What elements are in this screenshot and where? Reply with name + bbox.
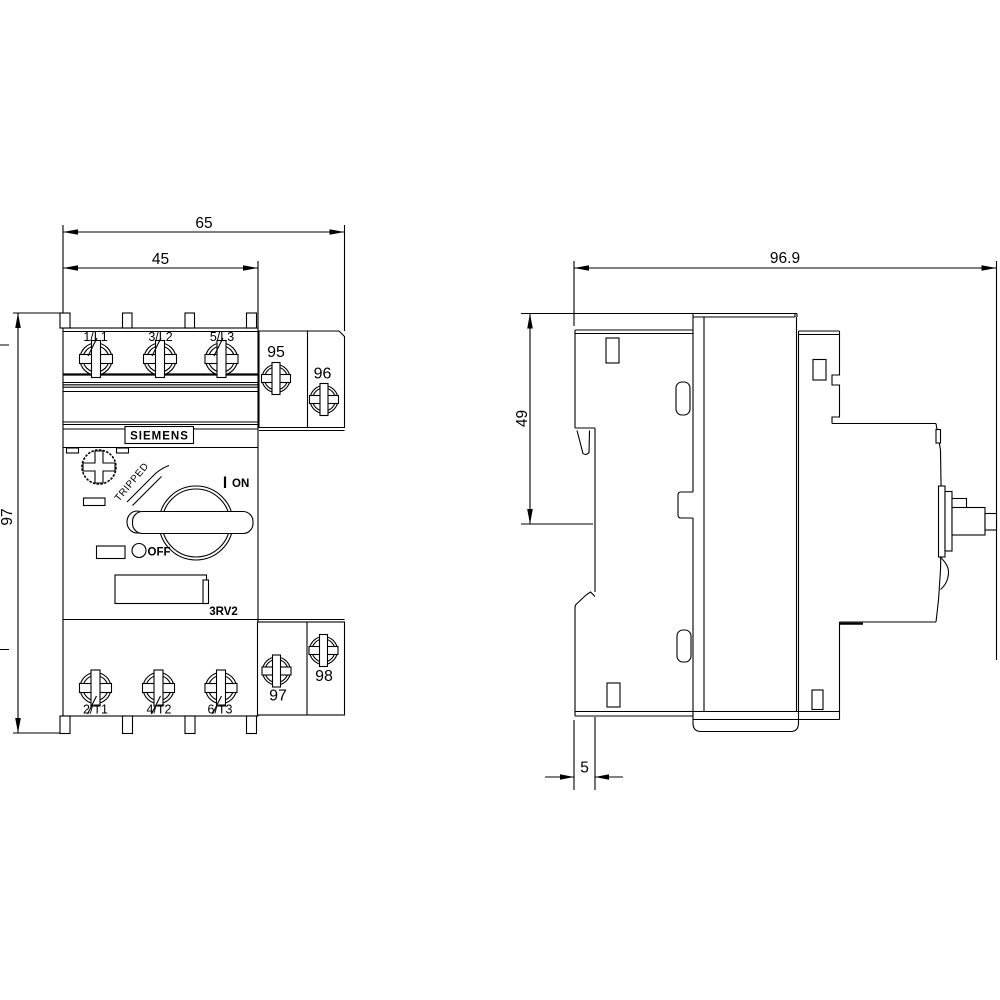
dim-din-clip: 5 [545, 717, 623, 790]
dim-height-upper-label: 49 [514, 410, 531, 427]
model-label: 3RV2 [209, 606, 238, 618]
aux-label-98: 98 [315, 668, 333, 685]
side-front-column [799, 331, 942, 720]
dim-width-total-label: 65 [195, 215, 212, 232]
mounting-tab [123, 313, 133, 328]
mounting-tab [185, 313, 195, 328]
mounting-tab [247, 716, 257, 734]
mounting-tab [123, 716, 133, 734]
mounting-tab [185, 716, 195, 734]
mounting-tab [60, 716, 70, 734]
terminal-label-1L1: 1/L1 [83, 330, 107, 344]
side-center-column [678, 314, 799, 732]
dim-depth-total-label: 96.9 [770, 250, 800, 267]
dim-height-upper: 49 [514, 314, 693, 525]
aux-label-95: 95 [267, 344, 285, 361]
dim-depth-total: 96.9 [574, 250, 997, 660]
label-window [115, 575, 207, 604]
aux-label-96: 96 [314, 366, 332, 383]
aux-label-97: 97 [269, 688, 287, 705]
off-label: OFF [148, 547, 171, 559]
mounting-tab [247, 313, 257, 328]
terminal-screws-top: 1/L1 3/L2 5/L3 [80, 330, 239, 378]
dim-din-clip-label: 5 [580, 760, 589, 777]
terminal-label-6T3: 6/T3 [207, 703, 232, 717]
brand-plate: SIEMENS [125, 427, 194, 444]
technical-drawing-page: 65 45 97 [0, 0, 1000, 1000]
dim-width-body-label: 45 [152, 251, 169, 268]
din-clip-lever [575, 592, 595, 716]
dim-width-body: 45 [63, 251, 258, 328]
din-clip-pawl [577, 431, 590, 455]
aux-block-top: 95 96 [259, 331, 345, 431]
terminal-label-4T2: 4/T2 [146, 703, 171, 717]
on-label: ON [232, 478, 249, 490]
brand-label: SIEMENS [130, 431, 189, 443]
terminal-label-2T1: 2/T1 [83, 703, 108, 717]
terminal-label-3L2: 3/L2 [148, 330, 172, 344]
terminal-screws-bottom: 2/T1 4/T2 6/T3 [80, 670, 238, 717]
off-symbol-icon [132, 544, 146, 558]
mounting-tab [60, 313, 70, 328]
dim-width-total: 65 [63, 215, 345, 331]
dim-height: 97 [0, 313, 60, 733]
adjustment-screw-icon [82, 450, 116, 484]
terminal-label-5L3: 5/L3 [210, 330, 234, 344]
breaker-dimension-drawing: 65 45 97 [0, 0, 1000, 1000]
dim-height-label: 97 [0, 508, 16, 525]
knob-shaft [939, 486, 997, 590]
aux-block-bottom: 97 98 [258, 622, 345, 715]
side-back-column [575, 330, 840, 720]
front-view: 65 45 97 [0, 215, 345, 734]
knob-handle [133, 512, 254, 534]
side-view: 96.9 49 [514, 250, 997, 790]
edge-marks [0, 345, 9, 650]
